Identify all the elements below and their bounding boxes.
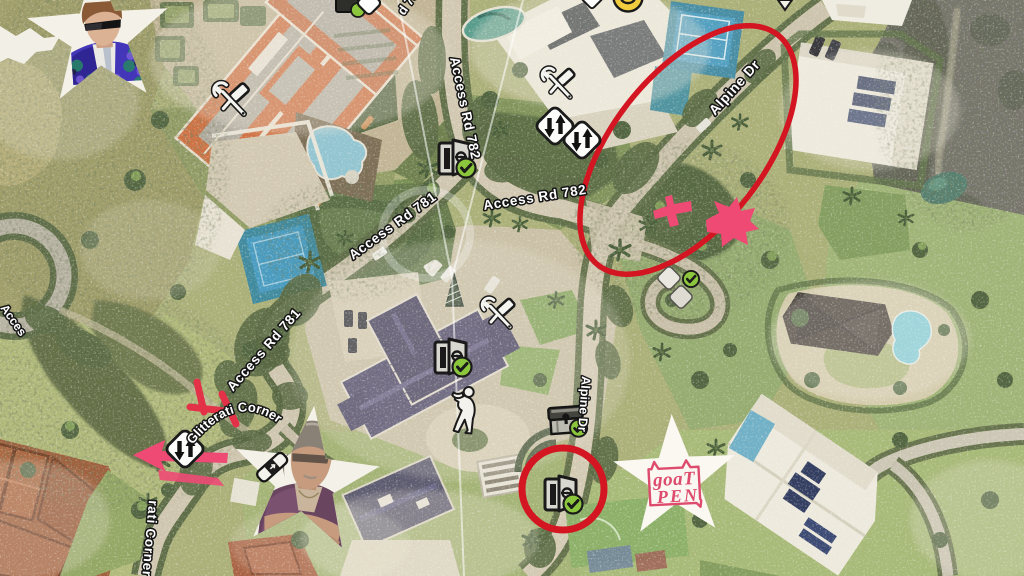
svg-text:PEN: PEN: [655, 485, 699, 507]
